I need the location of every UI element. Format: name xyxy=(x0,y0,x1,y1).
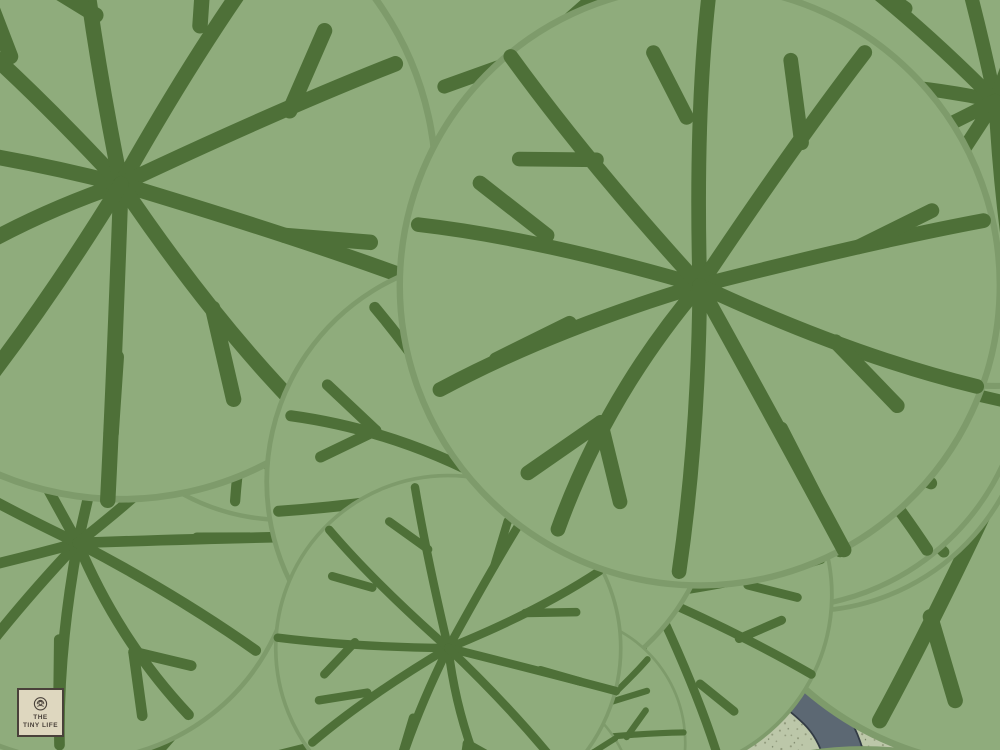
logo-line-2: TINY LIFE xyxy=(23,722,58,729)
tree-layer xyxy=(0,0,1000,750)
rose-icon xyxy=(32,696,49,713)
logo-line-1: THE xyxy=(33,714,48,721)
site-plan-map: THE TINY LIFE xyxy=(0,0,1000,750)
map-canvas xyxy=(0,0,1000,750)
site-plan-svg xyxy=(0,0,1000,750)
the-tiny-life-logo: THE TINY LIFE xyxy=(17,688,64,737)
